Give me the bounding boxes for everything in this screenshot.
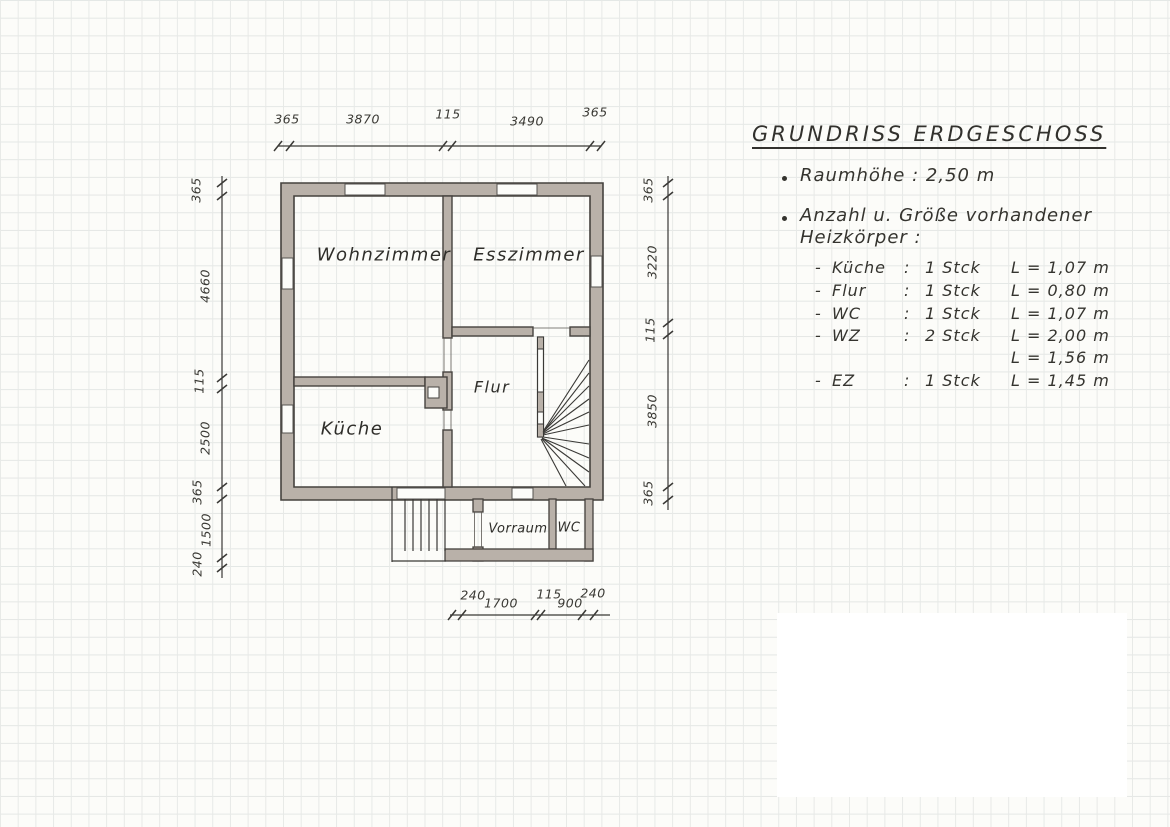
heiz-colon: : bbox=[904, 258, 925, 281]
staircase bbox=[538, 337, 590, 486]
page-title: GRUNDRISS ERDGESCHOSS bbox=[752, 122, 1106, 146]
note-anzahl-line1: Anzahl u. Größe vorhandener bbox=[800, 205, 1092, 226]
dim-top-365a: 365 bbox=[274, 112, 299, 127]
heiz-row-wz-cont: L = 1,56 m bbox=[815, 348, 1110, 371]
heiz-room bbox=[832, 348, 904, 371]
room-label-wc: WC bbox=[558, 521, 581, 536]
dim-right-3220: 3220 bbox=[645, 245, 660, 279]
heiz-row-ez: - EZ : 1 Stck L = 1,45 m bbox=[815, 371, 1110, 394]
note-raumhoehe: Raumhöhe : 2,50 m bbox=[800, 165, 995, 186]
heiz-dash bbox=[815, 348, 832, 371]
heiz-colon: : bbox=[904, 326, 925, 349]
heiz-length: L = 0,80 m bbox=[1011, 281, 1110, 304]
heiz-room: Flur bbox=[832, 281, 904, 304]
heiz-dash: - bbox=[815, 281, 832, 304]
dim-left-365a: 365 bbox=[189, 177, 204, 202]
heiz-dash: - bbox=[815, 304, 832, 327]
chimney-block bbox=[425, 377, 447, 408]
heiz-room: WZ bbox=[832, 326, 904, 349]
dim-right-365a: 365 bbox=[641, 177, 656, 202]
heiz-count: 1 Stck bbox=[925, 281, 1011, 304]
heiz-room: WC bbox=[832, 304, 904, 327]
room-label-wohnzimmer: Wohnzimmer bbox=[317, 245, 452, 266]
heiz-length: L = 2,00 m bbox=[1011, 326, 1110, 349]
heiz-row-wc: - WC : 1 Stck L = 1,07 m bbox=[815, 304, 1110, 327]
dim-left-365b: 365 bbox=[190, 479, 205, 504]
heiz-length: L = 1,07 m bbox=[1011, 258, 1110, 281]
bullet-icon bbox=[782, 176, 787, 181]
dim-left-1500: 1500 bbox=[199, 513, 214, 547]
dimension-line-bottom bbox=[448, 610, 610, 620]
dimension-line-right bbox=[663, 176, 673, 510]
heiz-count: 1 Stck bbox=[925, 371, 1011, 394]
dim-top-365b: 365 bbox=[582, 105, 607, 120]
dim-bottom-900: 900 bbox=[557, 596, 582, 611]
heiz-room: EZ bbox=[832, 371, 904, 394]
room-label-esszimmer: Esszimmer bbox=[473, 245, 585, 266]
heiz-count: 1 Stck bbox=[925, 258, 1011, 281]
dim-left-4660: 4660 bbox=[198, 269, 213, 303]
dim-right-3850: 3850 bbox=[645, 394, 660, 428]
dim-right-115: 115 bbox=[643, 317, 658, 342]
bullet-icon bbox=[782, 216, 787, 221]
dim-bottom-240b: 240 bbox=[580, 586, 605, 601]
heiz-colon: : bbox=[904, 371, 925, 394]
heiz-row-wz: - WZ : 2 Stck L = 2,00 m bbox=[815, 326, 1110, 349]
heiz-row-flur: - Flur : 1 Stck L = 0,80 m bbox=[815, 281, 1110, 304]
heiz-dash: - bbox=[815, 258, 832, 281]
scanned-floor-plan-page: Wohnzimmer Esszimmer Flur Küche Vorraum … bbox=[0, 0, 1170, 827]
heiz-count: 2 Stck bbox=[925, 326, 1011, 349]
dim-left-115: 115 bbox=[192, 368, 207, 393]
note-anzahl-line2: Heizkörper : bbox=[800, 227, 922, 248]
dim-left-240: 240 bbox=[190, 551, 205, 576]
dimension-line-top bbox=[274, 141, 605, 151]
dim-top-3870: 3870 bbox=[346, 112, 380, 127]
dim-bottom-240a: 240 bbox=[460, 588, 485, 603]
heiz-length: L = 1,56 m bbox=[1011, 348, 1110, 371]
dim-top-115: 115 bbox=[435, 107, 460, 122]
dimension-line-left bbox=[217, 176, 227, 578]
heiz-count bbox=[925, 348, 1011, 371]
heiz-length: L = 1,45 m bbox=[1011, 371, 1110, 394]
heiz-colon bbox=[904, 348, 925, 371]
heiz-length: L = 1,07 m bbox=[1011, 304, 1110, 327]
heiz-count: 1 Stck bbox=[925, 304, 1011, 327]
room-label-kueche: Küche bbox=[321, 419, 384, 440]
dim-right-365b: 365 bbox=[641, 480, 656, 505]
dim-left-2500: 2500 bbox=[198, 421, 213, 455]
heiz-dash: - bbox=[815, 326, 832, 349]
dim-top-3490: 3490 bbox=[510, 114, 544, 129]
heiz-dash: - bbox=[815, 371, 832, 394]
heiz-room: Küche bbox=[832, 258, 904, 281]
heiz-colon: : bbox=[904, 281, 925, 304]
room-label-vorraum: Vorraum bbox=[488, 522, 547, 537]
room-label-flur: Flur bbox=[474, 378, 510, 397]
heiz-colon: : bbox=[904, 304, 925, 327]
dim-bottom-1700: 1700 bbox=[484, 596, 518, 611]
heiz-row-kueche: - Küche : 1 Stck L = 1,07 m bbox=[815, 258, 1110, 281]
